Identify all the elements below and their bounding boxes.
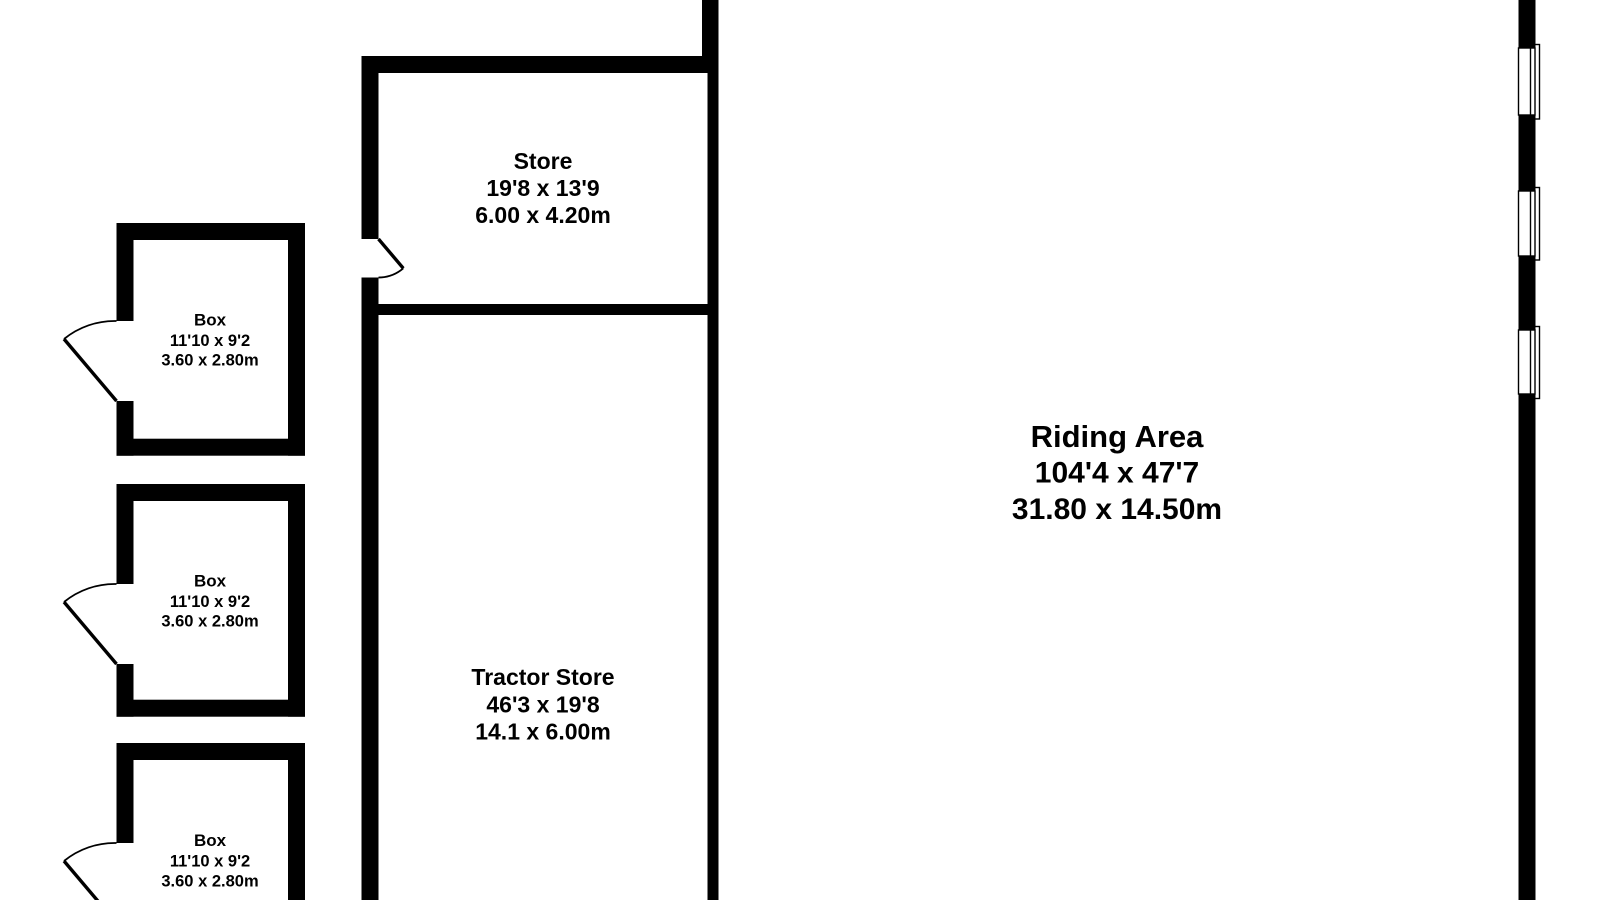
svg-text:31.80 x 14.50m: 31.80 x 14.50m	[1012, 493, 1222, 526]
svg-text:3.60 x 2.80m: 3.60 x 2.80m	[161, 873, 258, 891]
svg-text:11'10 x 9'2: 11'10 x 9'2	[170, 593, 250, 611]
svg-text:6.00 x 4.20m: 6.00 x 4.20m	[475, 202, 611, 228]
svg-text:3.60 x 2.80m: 3.60 x 2.80m	[161, 352, 258, 370]
svg-text:11'10 x 9'2: 11'10 x 9'2	[170, 853, 250, 871]
svg-text:Riding Area: Riding Area	[1031, 419, 1205, 454]
svg-text:3.60 x 2.80m: 3.60 x 2.80m	[161, 613, 258, 631]
svg-text:104'4 x 47'7: 104'4 x 47'7	[1035, 457, 1199, 490]
svg-text:Store: Store	[514, 148, 573, 174]
svg-text:Box: Box	[194, 311, 227, 330]
svg-text:Box: Box	[194, 831, 227, 850]
svg-text:14.1 x 6.00m: 14.1 x 6.00m	[475, 719, 611, 745]
svg-text:Tractor Store: Tractor Store	[471, 664, 614, 690]
svg-text:46'3 x 19'8: 46'3 x 19'8	[486, 692, 599, 718]
svg-text:19'8 x 13'9: 19'8 x 13'9	[486, 175, 599, 201]
svg-text:Box: Box	[194, 572, 227, 591]
svg-text:11'10 x 9'2: 11'10 x 9'2	[170, 332, 250, 350]
